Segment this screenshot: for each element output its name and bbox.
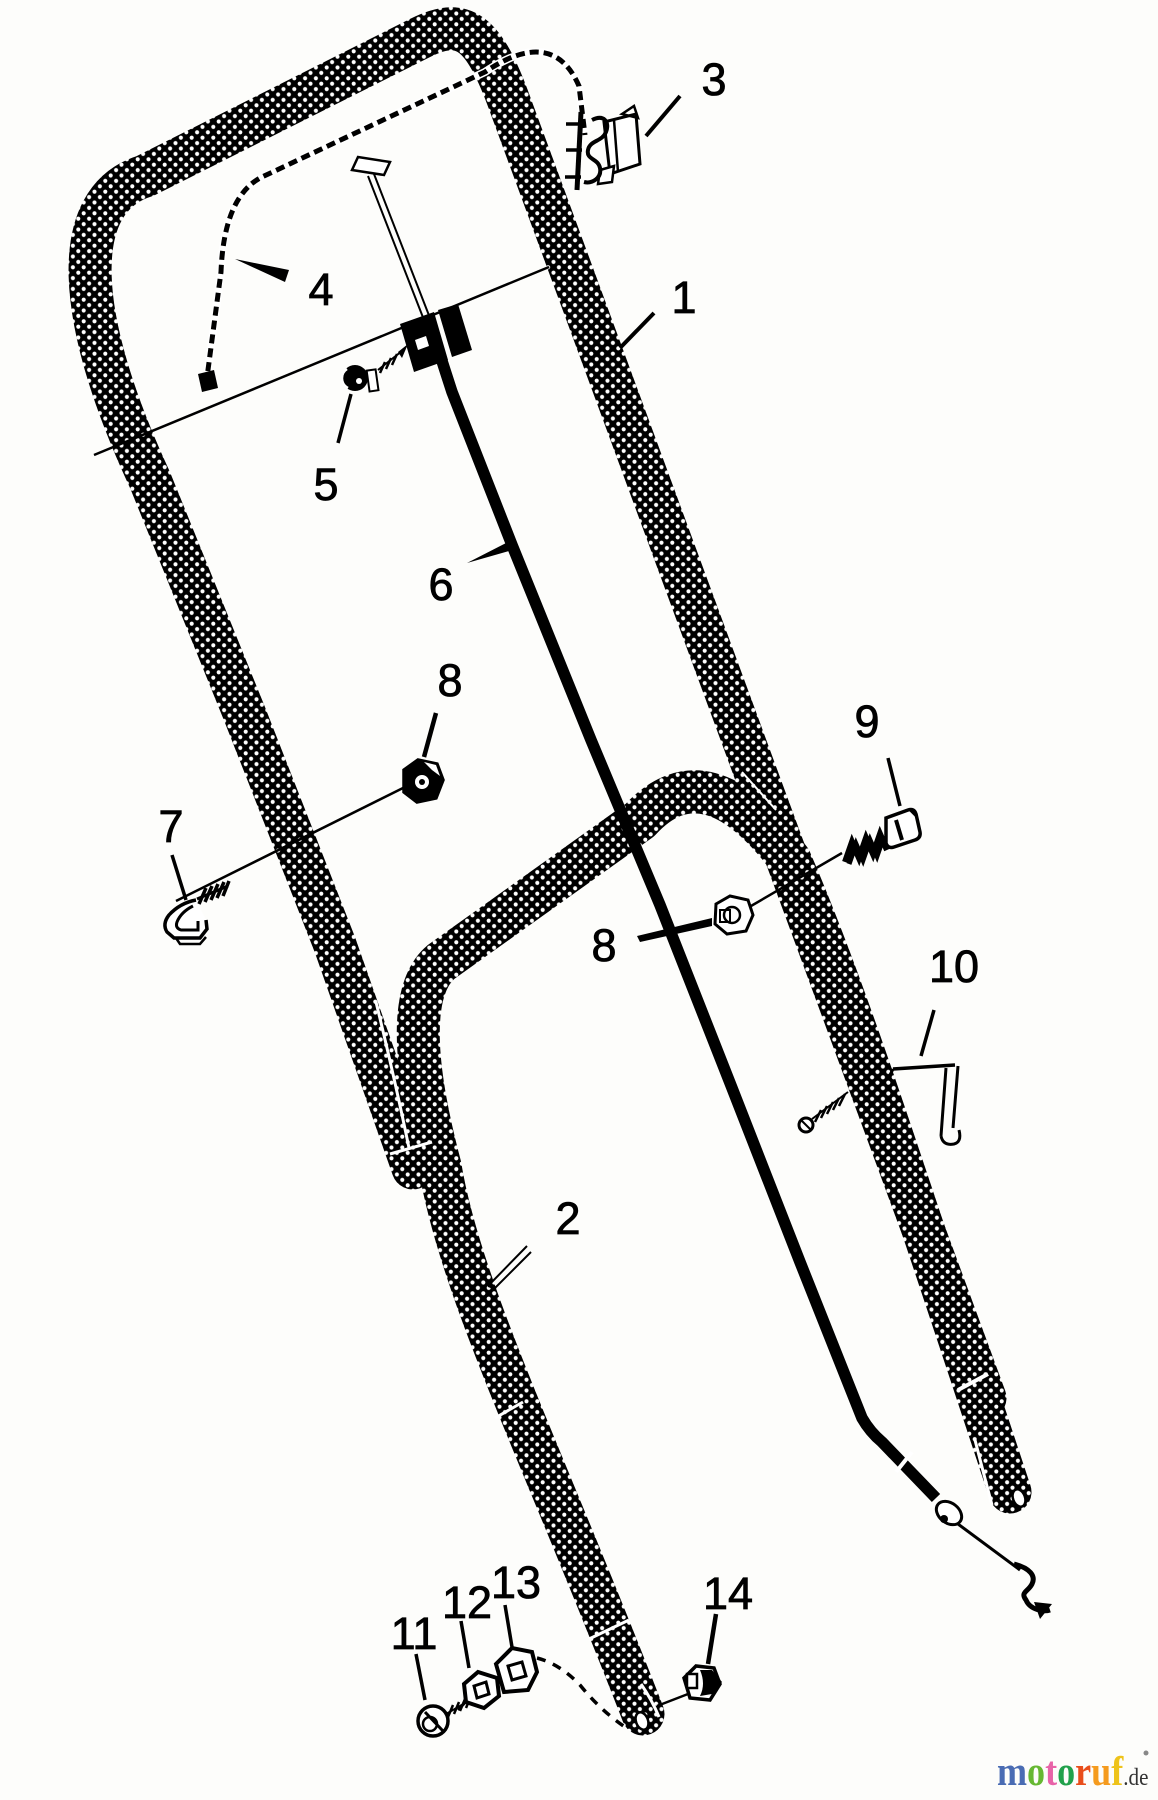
svg-text:9: 9	[854, 696, 879, 747]
svg-text:2: 2	[555, 1193, 580, 1244]
svg-text:1: 1	[671, 272, 696, 323]
svg-text:4: 4	[308, 264, 333, 315]
svg-text:7: 7	[158, 801, 183, 852]
svg-text:8: 8	[437, 655, 462, 706]
svg-text:8: 8	[591, 920, 616, 971]
svg-text:12: 12	[442, 1577, 492, 1628]
svg-text:5: 5	[313, 459, 338, 510]
svg-text:3: 3	[701, 54, 726, 105]
svg-text:13: 13	[491, 1557, 541, 1608]
svg-text:10: 10	[929, 941, 979, 992]
svg-text:6: 6	[428, 559, 453, 610]
svg-text:11: 11	[391, 1608, 438, 1659]
svg-text:14: 14	[703, 1568, 753, 1619]
